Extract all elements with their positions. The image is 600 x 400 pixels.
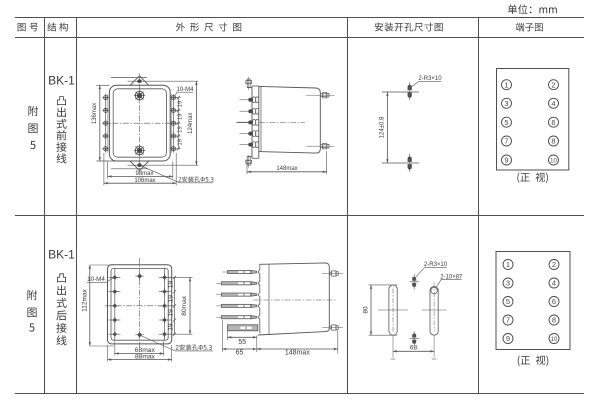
svg-text:80: 80 (363, 306, 370, 314)
svg-text:8: 8 (551, 137, 555, 146)
svg-text:9: 9 (504, 156, 508, 165)
svg-text:6: 6 (551, 118, 555, 127)
svg-text:19: 19 (178, 139, 184, 145)
svg-text:112max: 112max (81, 288, 88, 311)
svg-text:106max: 106max (134, 178, 155, 184)
svg-text:80max: 80max (181, 295, 188, 315)
svg-text:55: 55 (238, 339, 246, 346)
svg-text:19: 19 (168, 309, 175, 317)
svg-text:98max: 98max (135, 171, 153, 177)
svg-text:8: 8 (552, 316, 556, 325)
svg-text:3: 3 (506, 279, 510, 288)
svg-text:BK-1: BK-1 (48, 74, 75, 88)
svg-text:7: 7 (506, 316, 510, 325)
svg-text:124max: 124max (188, 113, 194, 134)
svg-text:124±0.8: 124±0.8 (380, 116, 386, 138)
svg-text:19: 19 (178, 114, 184, 120)
svg-text:5: 5 (506, 297, 510, 306)
svg-text:1: 1 (506, 260, 510, 269)
svg-text:1: 1 (504, 80, 508, 89)
svg-text:2-R3×10: 2-R3×10 (418, 76, 442, 82)
svg-text:19: 19 (168, 295, 175, 303)
svg-text:10: 10 (551, 337, 558, 343)
svg-text:148max: 148max (285, 349, 310, 356)
svg-text:5: 5 (504, 118, 508, 127)
svg-text:9: 9 (506, 334, 510, 343)
svg-text:2: 2 (551, 80, 555, 89)
svg-text:BK-1: BK-1 (48, 248, 75, 262)
svg-text:4: 4 (552, 279, 556, 288)
svg-text:19: 19 (168, 281, 175, 289)
svg-text:68: 68 (410, 345, 418, 352)
svg-text:3: 3 (504, 99, 508, 108)
svg-text:19: 19 (178, 126, 184, 132)
svg-text:19: 19 (178, 101, 184, 107)
svg-text:7: 7 (504, 137, 508, 146)
svg-text:148max: 148max (276, 166, 297, 172)
svg-text:88max: 88max (135, 353, 156, 360)
svg-text:4: 4 (551, 99, 555, 108)
svg-text:19: 19 (168, 323, 175, 331)
svg-text:10: 10 (550, 159, 557, 165)
svg-text:65: 65 (236, 349, 244, 356)
svg-text:136max: 136max (92, 103, 98, 124)
svg-text:6: 6 (552, 297, 556, 306)
svg-text:2: 2 (552, 260, 556, 269)
